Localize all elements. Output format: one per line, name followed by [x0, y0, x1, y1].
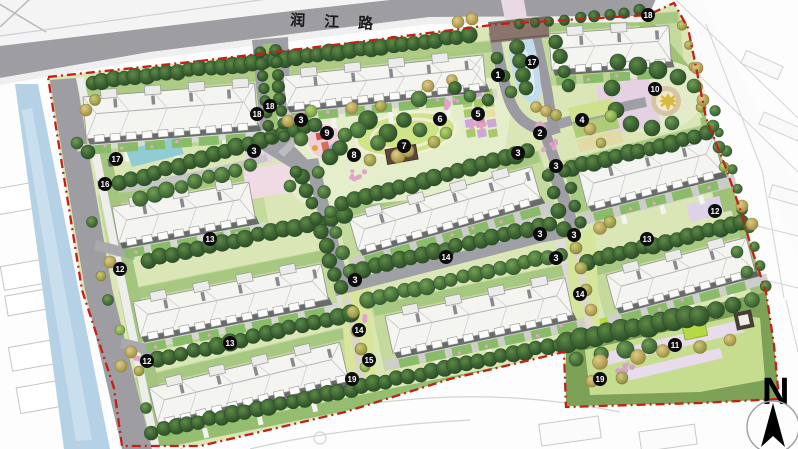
svg-text:11: 11: [671, 341, 680, 350]
svg-text:3: 3: [537, 229, 542, 239]
svg-text:17: 17: [112, 155, 121, 164]
svg-text:2: 2: [537, 128, 542, 138]
svg-text:3: 3: [251, 146, 256, 156]
svg-text:13: 13: [206, 235, 215, 244]
svg-text:1: 1: [495, 70, 500, 80]
svg-text:15: 15: [365, 356, 374, 365]
svg-text:6: 6: [437, 114, 442, 124]
svg-text:7: 7: [401, 141, 406, 151]
svg-text:3: 3: [553, 253, 558, 263]
svg-text:12: 12: [143, 357, 152, 366]
svg-text:16: 16: [101, 180, 110, 189]
svg-text:3: 3: [352, 275, 357, 285]
svg-text:14: 14: [576, 290, 585, 299]
svg-text:3: 3: [298, 115, 303, 125]
svg-text:13: 13: [226, 339, 235, 348]
svg-text:9: 9: [324, 128, 329, 138]
svg-text:4: 4: [579, 115, 584, 125]
svg-text:18: 18: [644, 11, 653, 20]
svg-text:14: 14: [442, 253, 451, 262]
svg-text:12: 12: [116, 265, 125, 274]
svg-text:14: 14: [355, 326, 364, 335]
svg-text:3: 3: [553, 161, 558, 171]
svg-text:5: 5: [475, 109, 480, 119]
svg-text:18: 18: [253, 110, 262, 119]
svg-text:18: 18: [266, 102, 275, 111]
svg-text:3: 3: [515, 148, 520, 158]
svg-text:N: N: [762, 371, 789, 413]
svg-text:3: 3: [571, 230, 576, 240]
svg-text:12: 12: [711, 207, 720, 216]
svg-text:13: 13: [643, 235, 652, 244]
svg-text:19: 19: [348, 375, 357, 384]
svg-text:17: 17: [528, 58, 537, 67]
svg-text:19: 19: [596, 375, 605, 384]
svg-text:8: 8: [351, 150, 356, 160]
svg-text:10: 10: [651, 85, 660, 94]
